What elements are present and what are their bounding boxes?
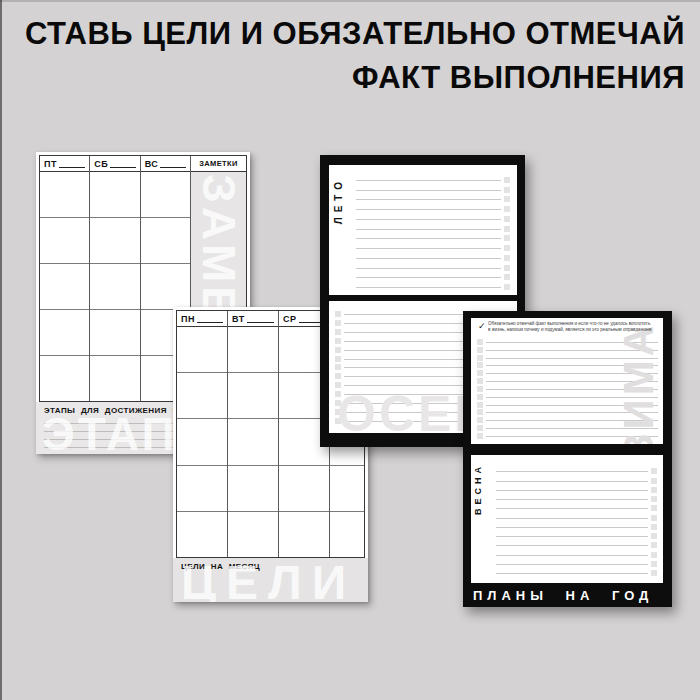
checkbox bbox=[477, 347, 483, 353]
checkbox bbox=[504, 177, 510, 183]
grid-cell bbox=[177, 466, 227, 512]
date-blank-rule bbox=[197, 322, 223, 323]
ruled-line bbox=[356, 209, 501, 210]
checkbox bbox=[335, 356, 341, 362]
note-line-2: в жизнь, напиши почему и подумай, являет… bbox=[488, 327, 651, 333]
ruled-line-row bbox=[356, 281, 510, 291]
ruled-line bbox=[356, 219, 501, 220]
ruled-line bbox=[356, 229, 501, 230]
day-header: ВС bbox=[141, 156, 190, 172]
checkbox bbox=[477, 362, 483, 368]
spring-lines bbox=[496, 466, 657, 577]
ruled-line-row bbox=[356, 194, 510, 204]
checkbox bbox=[651, 524, 657, 530]
planner-product-image: СТАВЬ ЦЕЛИ И ОБЯЗАТЕЛЬНО ОТМЕЧАЙ ФАКТ ВЫ… bbox=[0, 0, 700, 700]
day-label: ПТ bbox=[40, 159, 57, 171]
grid-cell bbox=[40, 172, 89, 218]
grid-cell bbox=[228, 327, 278, 373]
ruled-line-row bbox=[496, 503, 657, 512]
grid-cell bbox=[330, 512, 364, 557]
notes-header: ЗАМЕТКИ bbox=[191, 156, 246, 172]
grid-cell bbox=[177, 419, 227, 465]
checkbox bbox=[651, 496, 657, 502]
checkbox bbox=[651, 468, 657, 474]
day-label: ПН bbox=[177, 314, 195, 326]
ruled-line bbox=[496, 564, 648, 565]
ruled-line-row bbox=[496, 549, 657, 558]
summer-label: ЛЕТО bbox=[333, 177, 344, 224]
checkbox bbox=[504, 226, 510, 232]
grid-cell bbox=[141, 264, 190, 310]
checkbox bbox=[504, 196, 510, 202]
ruled-line-row bbox=[356, 233, 510, 243]
month-goals-footer: ЦЕЛИ НА МЕСЯЦ ЦЕЛИ bbox=[173, 558, 368, 602]
ruled-line-row bbox=[496, 494, 657, 503]
ruled-line bbox=[356, 287, 501, 288]
checkbox bbox=[651, 552, 657, 558]
checkbox bbox=[651, 478, 657, 484]
ruled-line-row bbox=[496, 485, 657, 494]
summer-lines bbox=[356, 174, 510, 291]
grid-cell bbox=[228, 419, 278, 465]
completion-note-text: Обязательно отмечай факт выполнения и ес… bbox=[488, 321, 651, 333]
day-columns: ПТСБВС bbox=[40, 156, 191, 401]
day-column: ПН bbox=[177, 311, 228, 557]
ruled-line bbox=[356, 190, 501, 191]
checkbox bbox=[504, 255, 510, 261]
date-blank-rule bbox=[59, 167, 85, 168]
day-label: ВТ bbox=[228, 314, 245, 326]
ruled-line-row bbox=[496, 559, 657, 568]
checkbox bbox=[477, 386, 483, 392]
spring-section: ВЕСНА bbox=[471, 455, 663, 583]
checkmark-icon: ✓ bbox=[478, 321, 486, 346]
checkbox bbox=[504, 206, 510, 212]
checkbox bbox=[651, 533, 657, 539]
checkbox bbox=[335, 347, 341, 353]
ruled-line-row bbox=[356, 223, 510, 233]
checkbox bbox=[651, 561, 657, 567]
ruled-line bbox=[496, 555, 648, 556]
grid-cell bbox=[330, 466, 364, 512]
image-top-edge bbox=[0, 0, 700, 2]
ruled-line-row bbox=[496, 466, 657, 475]
checkbox bbox=[477, 370, 483, 376]
grid-cell bbox=[90, 264, 139, 310]
grid-cell bbox=[228, 466, 278, 512]
ruled-line bbox=[356, 199, 501, 200]
summer-section: ЛЕТО bbox=[329, 165, 517, 295]
day-column: ПТ bbox=[40, 156, 90, 401]
checkbox bbox=[477, 433, 483, 439]
day-header: ВТ bbox=[228, 311, 278, 327]
day-column: СБ bbox=[90, 156, 140, 401]
grid-cell bbox=[90, 356, 139, 401]
ruled-line bbox=[496, 527, 648, 528]
year-plans-footer: ПЛАНЫ НА ГОД bbox=[473, 588, 653, 603]
date-blank-rule bbox=[160, 167, 186, 168]
page-title: СТАВЬ ЦЕЛИ И ОБЯЗАТЕЛЬНО ОТМЕЧАЙ ФАКТ ВЫ… bbox=[10, 12, 685, 100]
spring-label: ВЕСНА bbox=[474, 463, 484, 515]
ruled-line bbox=[496, 471, 648, 472]
ruled-line bbox=[496, 490, 648, 491]
ruled-line bbox=[356, 248, 501, 249]
day-label: ВС bbox=[141, 159, 159, 171]
checkbox bbox=[504, 235, 510, 241]
checkbox bbox=[477, 402, 483, 408]
grid-cell bbox=[40, 218, 89, 264]
grid-cell bbox=[40, 310, 89, 356]
day-header: ПТ bbox=[40, 156, 89, 172]
ruled-line-row bbox=[496, 568, 657, 577]
day-label: СБ bbox=[90, 159, 108, 171]
ruled-line bbox=[496, 518, 648, 519]
ruled-line bbox=[356, 268, 501, 269]
grid-cell bbox=[228, 512, 278, 557]
ruled-line-row bbox=[496, 522, 657, 531]
title-line-2: ФАКТ ВЫПОЛНЕНИЯ bbox=[10, 56, 685, 100]
grid-cell bbox=[40, 356, 89, 401]
grid-cell bbox=[40, 264, 89, 310]
completion-note: ✓ Обязательно отмечай факт выполнения и … bbox=[478, 321, 663, 346]
ruled-line bbox=[496, 481, 648, 482]
checkbox bbox=[504, 245, 510, 251]
ruled-line bbox=[496, 499, 648, 500]
checkbox bbox=[335, 364, 341, 370]
checkbox bbox=[651, 542, 657, 548]
checkbox bbox=[651, 505, 657, 511]
day-header: СБ bbox=[90, 156, 139, 172]
winter-section: ✓ Обязательно отмечай факт выполнения и … bbox=[471, 318, 663, 444]
ruled-line-row bbox=[496, 475, 657, 484]
grid-cell bbox=[228, 373, 278, 419]
ruled-line bbox=[496, 573, 648, 574]
grid-cell bbox=[141, 172, 190, 218]
ruled-line-row bbox=[356, 262, 510, 272]
ruled-line-row bbox=[356, 184, 510, 194]
image-left-edge bbox=[0, 0, 2, 700]
title-line-1: СТАВЬ ЦЕЛИ И ОБЯЗАТЕЛЬНО ОТМЕЧАЙ bbox=[10, 12, 685, 56]
ruled-line bbox=[356, 258, 501, 259]
checkbox bbox=[477, 409, 483, 415]
ruled-line-row bbox=[356, 252, 510, 262]
day-column: ВТ bbox=[228, 311, 279, 557]
checkbox bbox=[651, 515, 657, 521]
ruled-line-row bbox=[496, 540, 657, 549]
checkbox bbox=[477, 394, 483, 400]
ruled-line-row bbox=[496, 531, 657, 540]
checkbox bbox=[335, 329, 341, 335]
checkbox bbox=[335, 311, 341, 317]
checkbox bbox=[477, 425, 483, 431]
ruled-line-row bbox=[496, 512, 657, 521]
ruled-line bbox=[356, 277, 501, 278]
ruled-line bbox=[496, 545, 648, 546]
grid-cell bbox=[177, 373, 227, 419]
ruled-line-row bbox=[356, 242, 510, 252]
ruled-line bbox=[496, 536, 648, 537]
grid-cell bbox=[90, 310, 139, 356]
checkbox bbox=[504, 274, 510, 280]
ruled-line-row bbox=[356, 213, 510, 223]
ruled-line bbox=[496, 508, 648, 509]
month-goals-watermark: ЦЕЛИ bbox=[181, 559, 356, 602]
ruled-line-row bbox=[356, 272, 510, 282]
checkbox bbox=[477, 355, 483, 361]
grid-cell bbox=[177, 327, 227, 373]
day-label: СР bbox=[279, 314, 297, 326]
grid-cell bbox=[90, 218, 139, 264]
grid-cell bbox=[279, 512, 329, 557]
checkbox bbox=[651, 570, 657, 576]
grid-cell bbox=[141, 218, 190, 264]
ruled-line-row bbox=[356, 174, 510, 184]
checkbox bbox=[477, 417, 483, 423]
grid-cell bbox=[90, 172, 139, 218]
date-blank-rule bbox=[247, 322, 274, 323]
checkbox bbox=[504, 265, 510, 271]
ruled-line-row bbox=[356, 203, 510, 213]
ruled-line bbox=[356, 180, 501, 181]
checkbox bbox=[335, 373, 341, 379]
grid-cell bbox=[177, 512, 227, 557]
checkbox bbox=[504, 216, 510, 222]
day-header: ПН bbox=[177, 311, 227, 327]
checkbox bbox=[504, 187, 510, 193]
winter-spring-page: ✓ Обязательно отмечай факт выполнения и … bbox=[463, 311, 672, 607]
checkbox bbox=[651, 487, 657, 493]
checkbox bbox=[477, 378, 483, 384]
checkbox bbox=[335, 320, 341, 326]
date-blank-rule bbox=[110, 167, 135, 168]
ruled-line bbox=[356, 238, 501, 239]
grid-cell bbox=[279, 466, 329, 512]
checkbox bbox=[335, 338, 341, 344]
checkbox bbox=[504, 284, 510, 290]
